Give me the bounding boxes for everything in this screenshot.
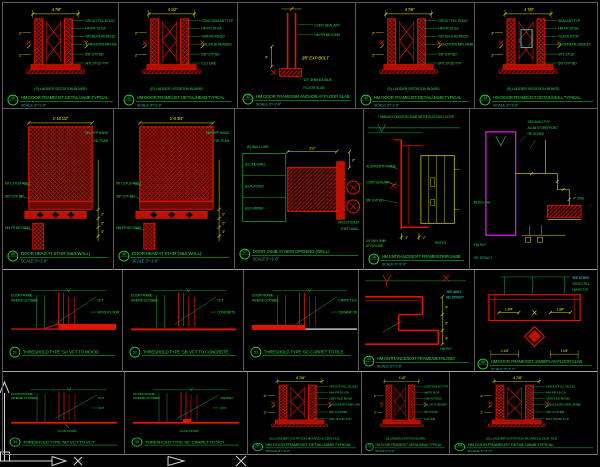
- cad-text: 4 1/2": [399, 376, 406, 380]
- grid-divider: [597, 109, 598, 270]
- cad-text: 5/8" GYP BD: [366, 198, 384, 202]
- cad-line: [180, 19, 188, 65]
- cad-text: 4" CMU: [573, 196, 585, 200]
- cad-text: SCALE 3"=1'-0": [132, 259, 159, 264]
- cad-text: SCALE 3"=1'-0": [375, 449, 394, 453]
- cad-text: DOOR FRAME: [131, 294, 153, 298]
- cad-text: MTL STUD TYP: [85, 61, 109, 65]
- cad-text: (S) LADDER S/STATION BOARD & CER TILE: [486, 437, 558, 440]
- cad-text: 5/8" GYP BD: [329, 410, 348, 413]
- cad-line: [66, 288, 70, 292]
- cad-text: 5/8" GYP BD: [201, 53, 220, 57]
- cad-line: [144, 223, 155, 249]
- cad-line: [140, 127, 213, 202]
- cad-text: HM FR 16 GA: [546, 391, 567, 394]
- cad-line: [380, 45, 383, 48]
- cad-text: 3 ANCHORS MIN JAMB: [85, 43, 117, 47]
- cad-text: 4": [445, 336, 449, 340]
- cad-text: 1 3/4": [505, 308, 514, 312]
- cad-text: 51: [13, 351, 17, 355]
- cad-text: DOOR FRAME: [11, 392, 34, 396]
- cad-text: 52: [133, 351, 137, 355]
- cad-text: 2'-0": [309, 147, 316, 151]
- cad-text: SCALE 3"=1'-0": [374, 103, 400, 108]
- cad-text: BLDG LINE: [474, 200, 491, 204]
- cad-text: HM FR 16 GA: [424, 390, 440, 394]
- detail-cell-r2c4[interactable]: * SIMILAR CONDITION SAME METHOD AT EXIST…: [364, 110, 468, 268]
- cad-text: CER TILE BASE: [546, 397, 570, 400]
- cad-line: [503, 64, 553, 69]
- cad-text: 2": [491, 32, 495, 36]
- cad-text: SHIM AS REQD: [201, 35, 225, 39]
- cad-text: GROUT FILL SOLID: [438, 19, 468, 23]
- cad-text: THRESHOLD TYPE 'SE' CARPET TO VCT: [145, 440, 225, 445]
- cad-line: [65, 424, 69, 427]
- cad-line: [384, 64, 434, 69]
- cad-text: GROUT SOLID: [338, 220, 360, 224]
- cad-line: [526, 237, 531, 242]
- cad-text: SIM OPP HAND: [85, 131, 109, 135]
- ucs-x-letter2-icon: [236, 456, 246, 466]
- cad-line: [525, 385, 533, 420]
- cad-text: VCT: [98, 406, 105, 410]
- cad-viewport[interactable]: 4 7/8"2"2"GROUT FILL SOLIDHM FR 16 GAWD …: [0, 0, 600, 467]
- cad-text: NEOPRENE GASKET: [558, 43, 592, 47]
- cad-line: [421, 156, 454, 224]
- grid-divider: [597, 270, 598, 372]
- cad-line: [537, 237, 542, 242]
- cad-text: CLG LINE: [201, 61, 216, 65]
- cad-text: SCALE 3"=1'-0": [382, 261, 408, 266]
- cad-text: THRESHOLD TYPE 'SA' VCT TO WOOD: [23, 350, 99, 355]
- cad-line: [516, 174, 570, 210]
- cad-text: EXIST WALL: [341, 227, 359, 231]
- cad-line: [296, 76, 302, 79]
- cad-text: CONT SEALANT: [314, 23, 341, 27]
- cad-text: 3/8" EXP BOLT: [301, 55, 329, 60]
- cad-line: [547, 205, 581, 217]
- cad-text: (S) LADDER S/STATION BOARD: [34, 87, 87, 91]
- cad-text: 4": [265, 55, 269, 59]
- cad-text: HM FR 16 GA: [85, 27, 106, 31]
- cad-text: GLASS STOP: [558, 35, 580, 39]
- cad-text: 4 7/8": [513, 376, 523, 379]
- detail-cell-r1c5[interactable]: 4 7/8"2"2"SEALANT TYPHM FR 16 GAGLASS ST…: [475, 3, 597, 108]
- cad-text: 2": [405, 236, 409, 240]
- cad-line: [488, 424, 545, 427]
- cad-text: RE: PLAN: [93, 139, 108, 143]
- cad-text: VCT: [220, 406, 227, 410]
- cad-line: [388, 19, 396, 65]
- cad-line: [67, 387, 71, 390]
- cad-line: [272, 405, 275, 407]
- cad-text: HM FR BEYOND: [314, 33, 340, 37]
- detail-cell-r2c5[interactable]: SEE 4/A5.1 TYPALUM STOREFRONTRE: SCHEDBL…: [470, 110, 597, 268]
- cad-text: DOOR FRAME: [11, 294, 33, 298]
- cad-text: DBL STUD HEADER: [424, 402, 447, 406]
- cad-text: HM DOOR FRAME/JST DETAIL/HEAD TYPICAL: [375, 443, 441, 447]
- grid-divider: [2, 454, 597, 455]
- cad-text: CER TILE BASE: [329, 397, 353, 400]
- cad-text: (S) LADDER S/STATION BOARD: [386, 436, 425, 440]
- cad-text: DOOR FRAME: [252, 294, 274, 298]
- cad-text: 4": [222, 230, 226, 234]
- cad-text: THRESHOLD TYPE 'SB' VCT TO CONCRETE: [143, 350, 229, 355]
- detail-cell-r3c5[interactable]: SEE SCHEDGROUT FILLHM FR TYP1 3/4"1 3/4"…: [475, 271, 596, 370]
- detail-cell-r4c3[interactable]: 4 7/8"2"2"GROUT FILL SOLIDHM FR 16 GACER…: [248, 373, 360, 453]
- detail-cell-r1c1[interactable]: 4 7/8"2"2"GROUT FILL SOLIDHM FR 16 GAWD …: [3, 3, 117, 108]
- cad-line: [383, 420, 420, 424]
- cad-line: [151, 19, 159, 65]
- detail-cell-r2c1[interactable]: 1'-10 1/2"2"2"4"MTL STUD WALL5/8" GYP BD…: [3, 110, 112, 268]
- cad-text: ALUM STOREFRONT: [528, 126, 558, 130]
- ucs-x-arrow-icon: [52, 457, 66, 466]
- detail-cell-r3c4[interactable]: 4"6"4"SEE 4/A5.1RE: STRUCTFIN FLR49HM EN…: [359, 271, 473, 370]
- cad-text: WD BLKG AS REQD: [438, 35, 469, 39]
- cad-text: DOOR JAMB AT NEW OPENING (WALL): [253, 249, 330, 254]
- cad-text: MTL STUD TYP: [438, 61, 462, 65]
- cad-text: (S) LADDER S/STATION BOARD: [387, 87, 440, 91]
- cad-line: [408, 385, 414, 420]
- cad-text: DOOR HEAD AT STAIR (S&S WALL): [21, 251, 91, 256]
- cad-text: SIM OPP HAND: [206, 131, 230, 135]
- grid-divider: [2, 108, 597, 109]
- cad-text: 53: [254, 351, 258, 355]
- cad-text: CONCRETE: [217, 311, 236, 315]
- cad-text: 2": [264, 411, 267, 414]
- cad-text: SCALE 3"=1'-0": [256, 102, 282, 107]
- cad-text: THRESHOLD TYPE 'SD' VCT TO VCT: [23, 440, 95, 445]
- cad-text: CL OF DOOR: [58, 429, 78, 433]
- cad-text: HM DOOR FRAME/JST DETAIL/MULL TYPICAL: [493, 95, 581, 100]
- cad-text: 4": [445, 306, 449, 310]
- cad-text: 55: [135, 440, 139, 444]
- cad-line: [252, 325, 306, 330]
- cad-text: HM FR 16 GA: [329, 391, 350, 394]
- cad-text: DOOR HEAD AT STAIR (S&S WALL): [132, 251, 202, 256]
- cad-text: SEALANT TYP: [558, 19, 581, 23]
- cad-line: [486, 132, 516, 235]
- cad-text: SCALE 3"=1'-0": [377, 364, 403, 369]
- cad-text: AT FLR LINE: [366, 244, 384, 248]
- cad-text: MTL STUD TYP: [329, 417, 352, 420]
- cad-text: SCALE 3"=1'-0": [468, 449, 494, 452]
- cad-text: 2": [264, 395, 267, 398]
- cad-line: [489, 295, 580, 321]
- detail-cell-r1c3[interactable]: CONT SEALANTHM FR BEYOND3/8" EXP BOLT4"1…: [238, 3, 354, 108]
- cad-text: 2": [480, 395, 483, 398]
- detail-cell-r4c5[interactable]: 4 7/8"2"2"GROUT FILL SOLIDHM FR 16 GACER…: [450, 373, 597, 453]
- cad-text: 58: [458, 444, 462, 447]
- cad-text: 2": [222, 221, 226, 225]
- cad-line: [380, 70, 438, 73]
- cad-text: 56: [256, 444, 260, 447]
- cad-text: RE: PLAN: [214, 139, 229, 143]
- detail-cell-r3c3[interactable]: DOOR FRAMEWHERE OCCURSCARPET & PADCERAMI…: [244, 271, 357, 370]
- cad-line: [27, 45, 30, 48]
- cad-text: SCALE 3"=1'-0": [491, 367, 516, 370]
- cad-line: [296, 297, 338, 325]
- cad-line: [186, 288, 190, 292]
- ucs-x-letter-icon: [74, 457, 82, 465]
- cad-text: GROUT FILL: [572, 282, 590, 286]
- cad-text: (S) LADDER S/STATION BOARD: [507, 86, 560, 91]
- cad-line: [140, 201, 213, 209]
- cad-text: HM DOOR FRAME/JST DETAIL/JAMB TYPICAL: [468, 444, 554, 447]
- cad-text: SEE 4/A5.1: [446, 290, 461, 294]
- cad-text: 2": [374, 394, 376, 398]
- cad-text: SCALE 3"=1'-0": [266, 449, 292, 452]
- cad-text: FLOOR SLAB: [303, 86, 325, 90]
- cad-line: [520, 136, 526, 142]
- cad-text: 1 3/4": [556, 308, 565, 312]
- cad-text: FIN FLR: [440, 347, 452, 351]
- cad-line: [275, 420, 324, 424]
- cad-line: [305, 328, 357, 329]
- cad-line: [507, 19, 515, 65]
- cad-text: VCT: [97, 299, 104, 303]
- cad-line: [55, 297, 97, 325]
- cad-text: 2": [423, 236, 427, 240]
- cad-text: 57: [368, 443, 372, 447]
- cad-text: FIN FLR: [474, 243, 486, 247]
- cad-text: 2": [372, 32, 376, 36]
- cad-text: 2": [19, 53, 23, 57]
- cad-text: 3 ANCHORS MIN JAMB: [329, 403, 360, 406]
- cad-text: DBL STUD HEADER: [201, 43, 232, 47]
- cad-text: HM FR 16 GA: [558, 27, 579, 31]
- cad-text: 41: [127, 95, 131, 100]
- cad-text: HM ENTRANCE/EXIT FRAME/DETAIL/SIM: [377, 356, 455, 361]
- cad-line: [496, 136, 506, 146]
- cad-text: 4 7/8": [405, 7, 415, 12]
- detail-cell-r2c2[interactable]: 1'-0 3/4"2"2"4"MTL STUD WALL5/8" GYP BDH…: [114, 110, 233, 268]
- cad-text: WHERE OCCURS: [131, 299, 158, 303]
- cad-text: 4 7/8": [52, 7, 62, 12]
- cad-line: [59, 324, 117, 330]
- cad-text: HM DOOR FRAME/JST DETAIL/JAMB TYPICAL: [374, 95, 462, 100]
- cad-text: MTL STUD TYP: [546, 417, 569, 420]
- cad-text: CARPET: [220, 396, 233, 400]
- cad-text: VCT: [98, 396, 105, 400]
- cad-text: 5/8" GYP BD: [424, 410, 438, 414]
- detail-cell-r4c2[interactable]: DOOR FRAMEWHERE OCCURSCARPETVCTCL OF DOO…: [125, 373, 245, 453]
- cad-line: [177, 395, 219, 419]
- cad-line: [496, 385, 504, 420]
- cad-line: [175, 297, 217, 325]
- cad-text: 42: [246, 94, 250, 99]
- cad-text: 2": [480, 411, 483, 414]
- detail-cell-r4c1[interactable]: DOOR FRAMEWHERE OCCURSVCTVCTCL OF DOOR54…: [3, 373, 123, 453]
- cad-text: SCALE 3"=1'-0": [21, 103, 47, 108]
- cad-text: WHERE OCCURS: [252, 299, 279, 303]
- cad-line: [537, 19, 545, 65]
- cad-text: HM DOOR FRAME/SIM ANCHOR AT FLOOR SLAB: [256, 94, 350, 99]
- cad-text: 2": [101, 212, 105, 216]
- cad-text: 5/8" GYP BD: [5, 194, 24, 198]
- cad-line: [189, 387, 193, 390]
- cad-text: 3 ANCHORS MIN JAMB: [546, 403, 581, 406]
- cad-line: [489, 405, 492, 407]
- cad-text: HM FR 16 GA: [201, 27, 222, 31]
- cad-text: SEE SCHED: [572, 276, 590, 280]
- cad-text: 2": [374, 411, 376, 415]
- cad-text: SCALE 3"=1'-0": [493, 103, 519, 108]
- cad-text: (E) CMU WALL: [245, 163, 266, 167]
- grid-divider: [597, 372, 598, 455]
- cad-text: WD BLKG AS REQD: [85, 35, 116, 39]
- cad-line: [431, 178, 435, 187]
- cad-text: RE: STRUCT: [474, 256, 492, 260]
- cad-text: ALUM ENTR FRAME: [366, 165, 397, 169]
- detail-cell-r1c2[interactable]: 4 1/2"2"2"CONT SEALANT TYPHM FR 16 GASHI…: [119, 3, 236, 108]
- cad-line: [308, 385, 316, 420]
- cad-text: 6": [352, 159, 356, 163]
- cad-text: 5 ANCHORS MIN JAMB: [438, 43, 473, 47]
- cad-text: SCALE 3"=1'-0": [137, 103, 163, 108]
- cad-line: [29, 127, 92, 202]
- cad-text: HM FR 16 GA: [438, 27, 459, 31]
- cad-text: 2": [222, 212, 226, 216]
- cad-text: 54: [13, 440, 17, 444]
- cad-text: * SIMILAR CONDITION SAME METHOD AT EXIST…: [378, 115, 455, 119]
- cad-text: HM DOOR FRAME/SET JAMB/PLAN FLOOR SLAB: [491, 359, 583, 364]
- cad-text: HM FR TYP: [572, 288, 588, 292]
- cad-line: [147, 64, 197, 69]
- cad-text: 1 1/4": [501, 349, 509, 353]
- cad-text: (E) WALL LINE: [247, 145, 270, 149]
- cad-text: CLG LINE: [424, 417, 435, 421]
- cad-line: [386, 385, 392, 420]
- cad-text: 4": [101, 230, 105, 234]
- cad-text: (E) LADDER S/STATION BOARD: [150, 87, 203, 91]
- cad-text: WOOD FLOOR: [97, 311, 120, 315]
- cad-text: HM DOOR FRAME/JST DETAIL/HEAD TYPICAL: [137, 95, 226, 100]
- cad-text: SHIM AS REQD: [424, 396, 442, 400]
- cad-line: [499, 45, 502, 48]
- cad-line: [384, 200, 400, 203]
- cad-text: RE: SCHED: [528, 132, 545, 136]
- cad-text: SCALE 3"=1'-0": [253, 257, 280, 262]
- cad-line: [337, 162, 345, 220]
- cad-text: HM FR BEYOND: [5, 226, 31, 230]
- cad-line: [271, 424, 327, 427]
- cad-text: GROUT FILL SOLID: [329, 385, 359, 388]
- cad-line: [380, 405, 382, 407]
- ucs-x-arrow2-icon: [168, 457, 184, 466]
- cad-line: [11, 422, 117, 424]
- cad-line: [499, 70, 557, 73]
- cad-line: [307, 288, 311, 292]
- cad-line: [417, 19, 425, 65]
- cad-text: 5/8" GYP BD: [116, 194, 135, 198]
- grid-divider: [597, 2, 598, 109]
- cad-text: 5/8" GYP BD: [85, 53, 104, 57]
- cad-text: 2": [491, 54, 495, 58]
- cad-text: DOOR FRAME: [133, 392, 156, 396]
- cad-text: 2": [372, 53, 376, 57]
- cad-text: HM FR BEYOND: [116, 226, 142, 230]
- cad-text: 2": [135, 32, 139, 36]
- cad-line: [530, 140, 536, 150]
- cad-text: 6": [445, 321, 449, 325]
- cad-text: CARPET & PAD: [338, 299, 357, 303]
- cad-text: HM ENTRANCE/EXIT FRAME/STRIP/JAMB: [382, 254, 461, 259]
- cad-text: WHERE OCCURS: [11, 299, 38, 303]
- cad-line: [288, 168, 339, 212]
- detail-cell-r1c4[interactable]: 4 7/8"2"2"GROUT FILL SOLIDHM FR 16 GAWD …: [356, 3, 473, 108]
- cad-line: [29, 201, 92, 209]
- cad-text: 5/8" GYP BD: [558, 61, 577, 65]
- cad-text: 2": [135, 53, 139, 57]
- cad-line: [27, 70, 84, 73]
- cad-text: 2": [19, 32, 23, 36]
- cad-line: [279, 385, 287, 420]
- cad-line: [131, 328, 236, 330]
- cad-text: CONT SEALANT TYP: [424, 384, 448, 388]
- cad-text: 4 7/8": [524, 7, 534, 12]
- cad-text: 4 1/2": [168, 7, 178, 12]
- cad-text: 4 7/8": [296, 376, 306, 379]
- cad-text: 1 1/4": [561, 349, 569, 353]
- detail-cell-r4c4[interactable]: 4 1/2"2"2"CONT SEALANT TYPHM FR 16 GASHI…: [362, 373, 448, 453]
- cad-line: [31, 64, 81, 69]
- cad-line: [64, 19, 72, 65]
- cad-text: RE: STRUCT: [446, 296, 464, 300]
- cad-text: 5/8" GYP BD: [438, 53, 457, 57]
- cad-text: GROUT FILL SOLID: [546, 385, 576, 388]
- cad-line: [529, 330, 541, 342]
- cad-text: CL OF DOOR: [180, 429, 200, 433]
- cad-line: [431, 199, 435, 205]
- cad-line: [11, 328, 59, 329]
- cad-text: SCALE 3"=1'-0": [21, 259, 48, 264]
- cad-line: [33, 223, 44, 249]
- cad-text: CERAMIC TILE: [338, 311, 357, 315]
- cad-text: THRESHOLD TYPE 'SC' CARPET TO TILE: [264, 350, 344, 355]
- cad-text: 1/2" SHIM EA SIDE: [303, 78, 332, 82]
- cad-text: VCT: [217, 299, 224, 303]
- cad-line: [492, 420, 541, 424]
- cad-line: [143, 45, 146, 48]
- cad-text: 1'-10 1/2": [53, 116, 69, 121]
- cad-line: [380, 424, 423, 427]
- cad-line: [143, 70, 201, 73]
- cad-text: 1/4" MAX SHIM: [366, 239, 386, 243]
- cad-text: 47: [243, 249, 247, 254]
- detail-cell-r3c1[interactable]: DOOR FRAMEWHERE OCCURSVCTWOOD FLOOR51THR…: [3, 271, 121, 370]
- cad-text: SEE 4/A5.1 TYP: [528, 120, 551, 124]
- cad-text: HM DOOR FRAME/JST DETAIL/JAMB TYPICAL: [266, 444, 352, 447]
- cad-text: (S) LADDER S/STATION BOARD & CER TILE: [269, 437, 341, 440]
- detail-cell-r2c3[interactable]: (E) WALL LINE(E) CMU WALL(E) PLASTER(E) …: [235, 110, 362, 268]
- detail-cell-r3c2[interactable]: DOOR FRAMEWHERE OCCURSVCTCONCRETE52THRES…: [123, 271, 242, 370]
- cad-line: [55, 395, 97, 419]
- cad-text: GROUT FILL SOLID: [85, 19, 115, 23]
- cad-line: [280, 68, 302, 76]
- cad-text: 2": [101, 221, 105, 225]
- cad-text: 1'-0 3/4": [170, 116, 184, 121]
- cad-text: FIN FLR: [435, 241, 447, 245]
- cad-text: HM DOOR FRAME/JST DETAIL/JAMB TYPICAL: [21, 95, 109, 100]
- cad-text: MTL STUD: [558, 53, 575, 57]
- cad-line: [183, 419, 191, 422]
- cad-line: [35, 19, 43, 65]
- cad-text: (E) FURRING: [245, 206, 264, 210]
- cad-text: 5/8" GYP BD: [546, 410, 565, 413]
- cad-text: CONT SEALANT TYP: [201, 19, 234, 23]
- cad-text: (E) PLASTER: [245, 184, 265, 188]
